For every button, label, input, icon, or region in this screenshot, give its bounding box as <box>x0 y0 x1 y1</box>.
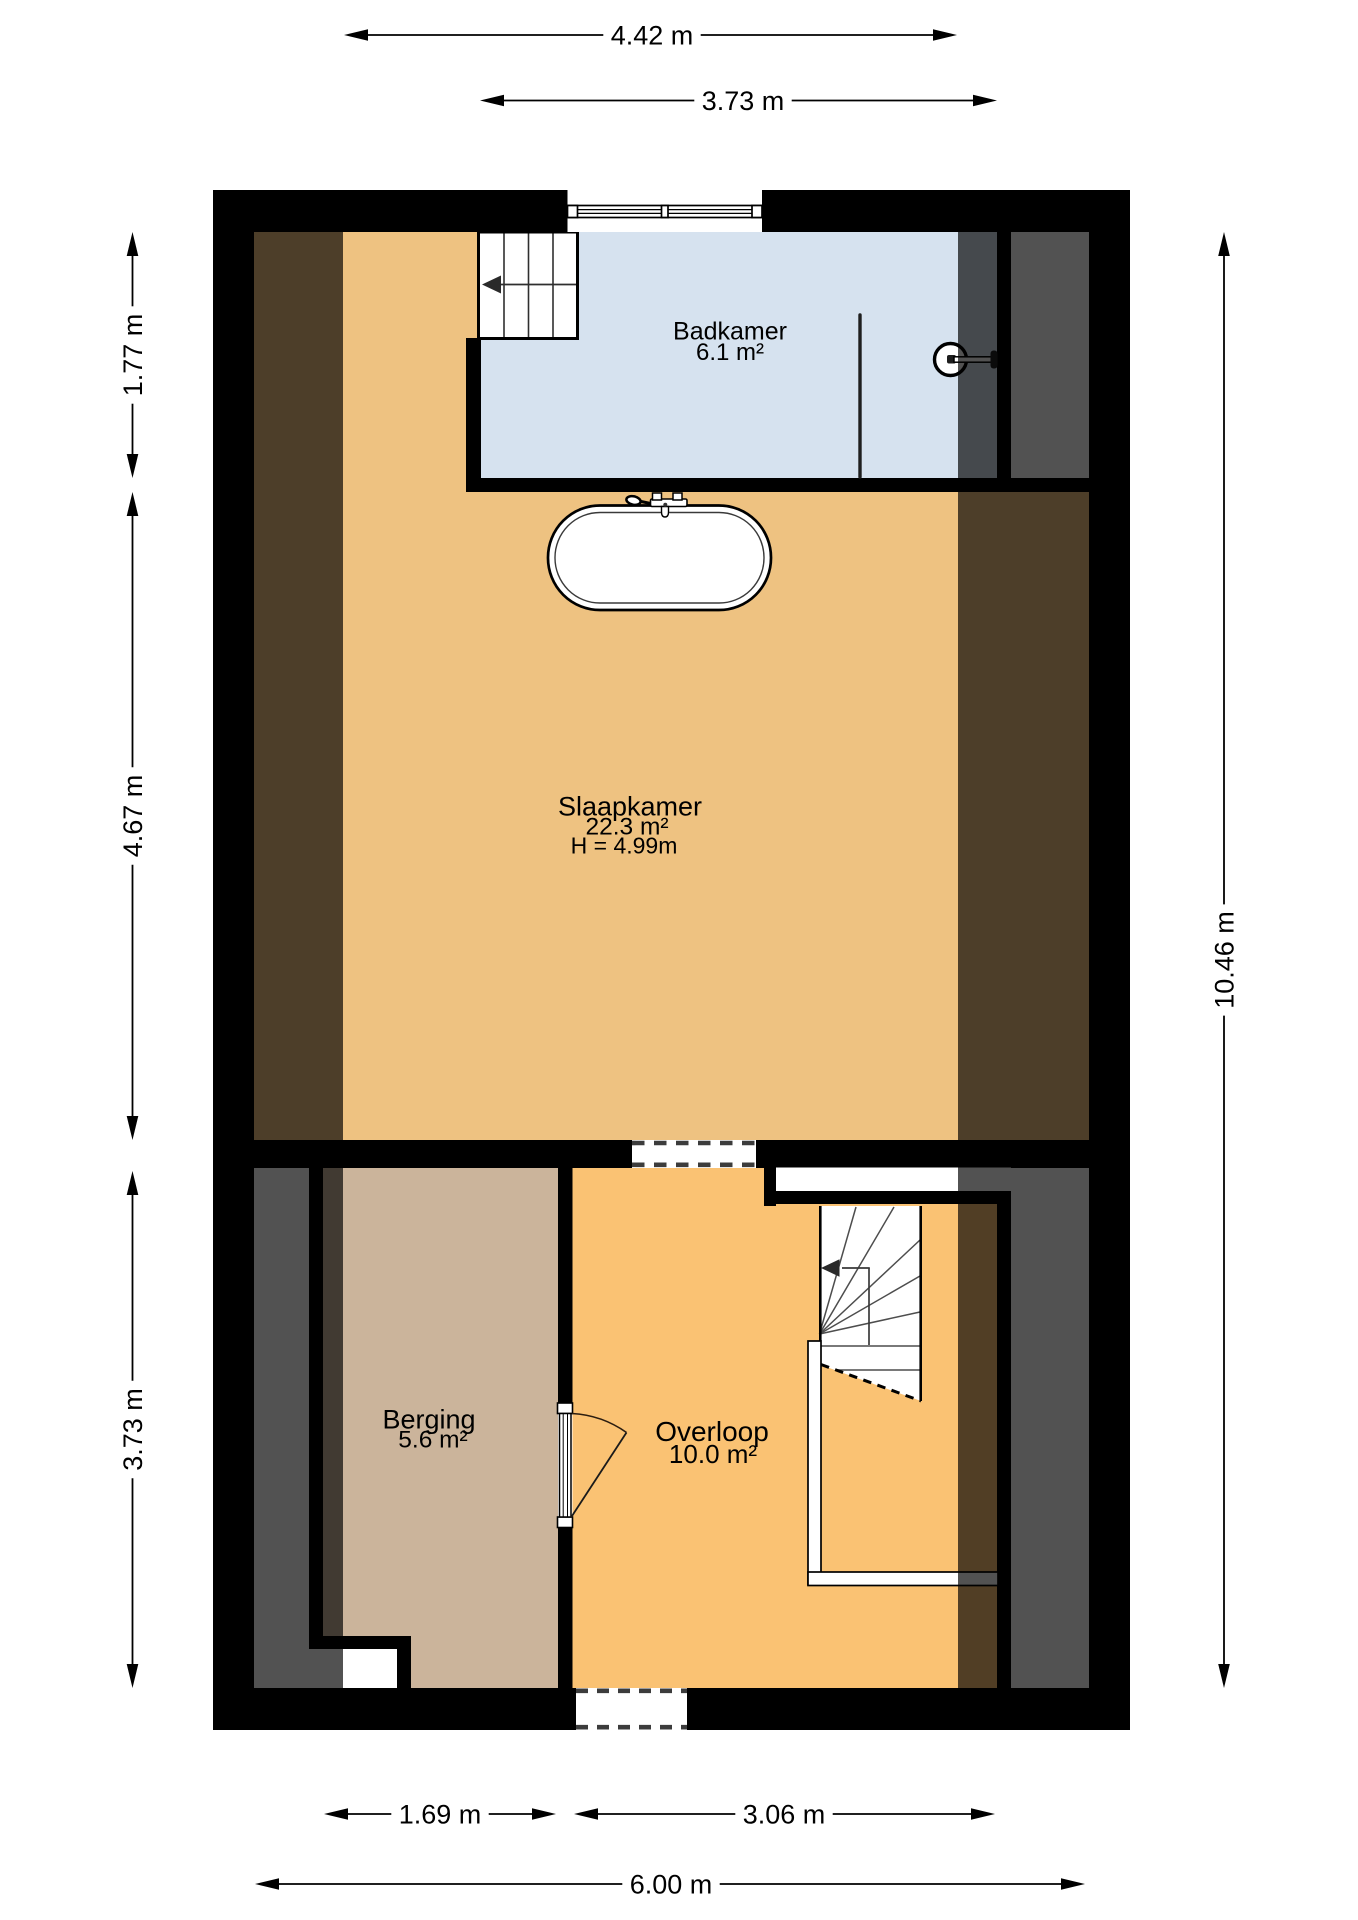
svg-text:10.46 m: 10.46 m <box>1210 911 1240 1009</box>
svg-text:5.6 m²: 5.6 m² <box>398 1427 467 1454</box>
svg-text:1.69 m: 1.69 m <box>399 1800 482 1830</box>
svg-text:6.00 m: 6.00 m <box>630 1870 713 1900</box>
svg-text:10.0 m²: 10.0 m² <box>669 1439 757 1469</box>
svg-text:3.06 m: 3.06 m <box>743 1800 826 1830</box>
svg-text:3.73 m: 3.73 m <box>702 86 785 116</box>
svg-text:6.1 m²: 6.1 m² <box>696 339 764 366</box>
svg-text:1.77 m: 1.77 m <box>118 314 148 397</box>
svg-text:H = 4.99m: H = 4.99m <box>571 833 678 859</box>
svg-text:4.67 m: 4.67 m <box>118 775 148 858</box>
svg-text:4.42 m: 4.42 m <box>611 21 694 51</box>
svg-text:3.73 m: 3.73 m <box>118 1388 148 1471</box>
